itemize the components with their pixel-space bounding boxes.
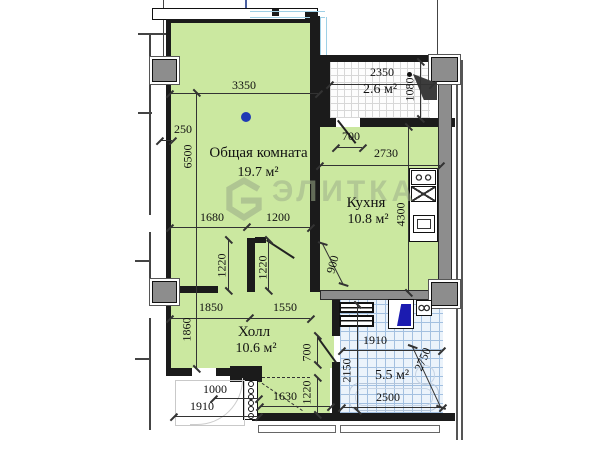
toilet xyxy=(388,299,414,329)
right-edge-line-b xyxy=(461,60,463,440)
dim-label-1220-vest: 1220 xyxy=(301,371,314,415)
wc-area: 2.6 м² xyxy=(350,82,410,98)
glazing-side xyxy=(320,17,327,59)
hall-stub-wall xyxy=(177,286,218,293)
left-stub-a xyxy=(135,260,149,262)
neighbor-strip-b xyxy=(340,425,440,433)
dim-label-1080: 1080 xyxy=(404,68,417,112)
left-thin-wall-a xyxy=(149,35,151,215)
dim-line-1910-entry xyxy=(174,416,258,417)
dim-line-1000 xyxy=(214,398,258,399)
dim-label-1860: 1860 xyxy=(181,308,194,352)
living-room-area: 19.7 м² xyxy=(208,165,308,181)
wc-bottom-wall-left xyxy=(310,118,336,127)
kitchen-name: Кухня xyxy=(336,195,396,212)
axis-point-marker xyxy=(241,112,251,122)
dim-label-6500: 6500 xyxy=(182,135,195,179)
hall-bottom-wall-a xyxy=(166,368,192,376)
neighbor-strip-a xyxy=(258,425,336,433)
dim-label-1000: 1000 xyxy=(195,383,235,396)
left-thin-wall-b xyxy=(149,232,151,305)
dim-label-1910-bath: 1910 xyxy=(345,334,405,347)
door-jamb-stub xyxy=(255,237,266,243)
dim-line-1630 xyxy=(260,406,330,407)
column-mid-left xyxy=(152,281,177,303)
dim-label-1850: 1850 xyxy=(191,301,231,314)
top-wall-bar xyxy=(166,19,318,23)
wash-sink xyxy=(416,300,432,316)
dim-line-250 xyxy=(160,140,172,141)
column-top-left xyxy=(152,59,177,82)
bottom-wall xyxy=(252,413,455,421)
dim-label-1200: 1200 xyxy=(258,211,298,224)
column-top-right xyxy=(431,57,458,82)
kitchen-right-wall xyxy=(438,80,452,290)
dim-label-1910-entry: 1910 xyxy=(182,400,222,413)
dim-line-2500 xyxy=(342,407,442,408)
dim-label-1680: 1680 xyxy=(192,211,232,224)
hall-name: Холл xyxy=(224,324,284,341)
dim-line-1680-1200 xyxy=(170,227,310,228)
dim-label-1550: 1550 xyxy=(265,301,305,314)
dim-line-1080 xyxy=(420,62,421,118)
dim-line-3350 xyxy=(170,93,318,94)
grid-line-right xyxy=(437,0,438,57)
dim-line-1220-vest xyxy=(317,378,318,414)
dim-label-3350: 3350 xyxy=(214,79,274,92)
dim-label-1220-right: 1220 xyxy=(257,246,270,290)
dim-line-2730 xyxy=(320,165,440,166)
outer-stub-top xyxy=(138,33,166,35)
dim-label-2150: 2150 xyxy=(341,349,354,393)
left-thin-wall-c xyxy=(149,318,151,430)
dim-line-700-bath xyxy=(317,336,318,364)
wall-pier xyxy=(247,238,255,292)
dim-label-4300: 4300 xyxy=(395,193,408,237)
dim-label-1220-left: 1220 xyxy=(216,244,229,288)
left-stub-b xyxy=(135,358,149,360)
dim-label-2730: 2730 xyxy=(356,147,416,160)
column-bottom-right xyxy=(431,282,458,306)
dim-label-2500: 2500 xyxy=(358,391,418,404)
dim-label-700-top: 700 xyxy=(331,130,371,143)
living-room-name: Общая комната xyxy=(186,145,331,162)
hall-area: 10.6 м² xyxy=(216,341,296,357)
dim-label-700-bath: 700 xyxy=(301,331,314,375)
right-edge-line-a xyxy=(456,60,458,440)
kitchen-cabinet-inner xyxy=(417,219,431,229)
floor-plan: ЭЛИТКА Общая комната 19.7 м² Кухня 10.8 … xyxy=(0,0,600,450)
